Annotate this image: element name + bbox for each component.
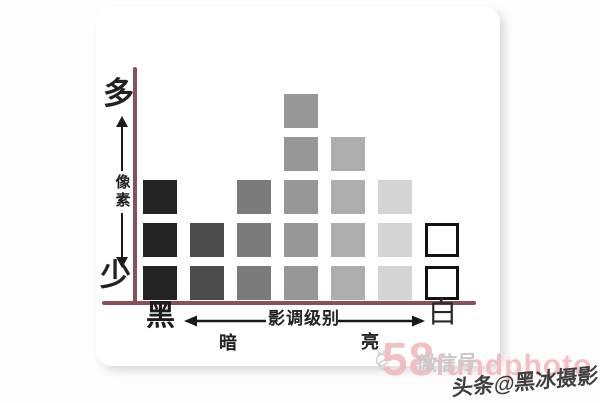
tone-block xyxy=(143,180,177,214)
tone-block xyxy=(331,180,365,214)
tone-block xyxy=(378,266,412,300)
y-axis-title: 像素 xyxy=(112,174,133,210)
tone-block xyxy=(284,223,318,257)
histogram-column-4 xyxy=(284,94,318,300)
histogram-column-3 xyxy=(237,180,271,300)
tone-block xyxy=(284,180,318,214)
x-min-label: 黑 xyxy=(146,302,175,331)
tone-block xyxy=(331,137,365,171)
page: 多 像素 少 黑 影调级别 白 暗 亮 58fundphoto 微信号 头条@黑… xyxy=(0,0,600,403)
tone-block xyxy=(190,266,224,300)
tone-block xyxy=(143,223,177,257)
tone-block xyxy=(190,223,224,257)
x-max-label: 白 xyxy=(428,299,457,328)
tone-block xyxy=(284,94,318,128)
histogram-column-1 xyxy=(143,180,177,300)
tone-block xyxy=(378,180,412,214)
x-axis-title: 影调级别 xyxy=(268,310,340,327)
y-max-label: 多 xyxy=(103,78,134,109)
arrow-up-icon xyxy=(116,116,128,127)
arrow-stem xyxy=(121,127,123,171)
histogram-column-5 xyxy=(331,137,365,300)
tone-block xyxy=(425,223,459,257)
tone-block xyxy=(284,266,318,300)
tone-block xyxy=(237,223,271,257)
y-min-label: 少 xyxy=(100,260,131,291)
tone-block xyxy=(378,223,412,257)
tone-block xyxy=(284,137,318,171)
tone-block xyxy=(237,180,271,214)
sub-label-dark: 暗 xyxy=(219,334,237,352)
tone-block xyxy=(143,266,177,300)
arrow-right-icon xyxy=(338,314,425,328)
histogram-column-6 xyxy=(378,180,412,300)
tone-block xyxy=(237,266,271,300)
tone-block xyxy=(331,266,365,300)
y-axis-double-arrow: 像素 xyxy=(110,116,134,268)
arrow-stem xyxy=(121,213,123,257)
arrow-left-icon xyxy=(184,314,266,328)
tone-block xyxy=(331,223,365,257)
histogram-column-7 xyxy=(425,223,459,300)
tone-block xyxy=(425,266,459,300)
histogram-column-2 xyxy=(190,223,224,300)
sub-label-bright: 亮 xyxy=(361,333,379,351)
